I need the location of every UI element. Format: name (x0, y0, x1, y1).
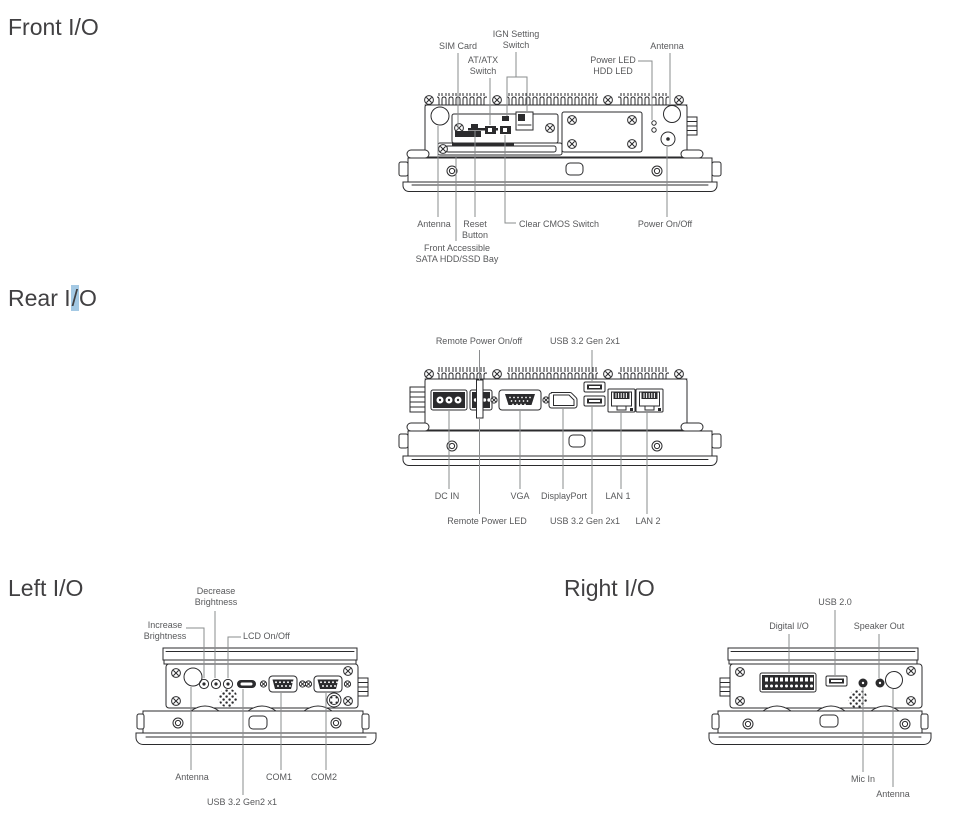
usb-c-port (237, 680, 256, 688)
antenna-hole-front-left (431, 107, 449, 125)
label-usb32-gen2: USB 3.2 Gen2 x1 (177, 797, 307, 808)
label-lan1: LAN 1 (578, 491, 658, 502)
lan1-port (608, 389, 635, 412)
vga-port (491, 390, 549, 410)
label-com2: COM2 (284, 772, 364, 783)
label-at-atx-switch: AT/ATX Switch (443, 55, 523, 77)
rear-side-stub (410, 387, 425, 412)
label-usb32-top: USB 3.2 Gen 2x1 (525, 336, 645, 347)
reset-button (471, 124, 478, 129)
label-power-on-off: Power On/Off (625, 219, 705, 230)
label-ign-setting-switch: IGN Setting Switch (476, 29, 556, 51)
text-selection-highlight: / (71, 285, 79, 311)
dc-in-port (431, 390, 467, 410)
rear-io-heading-post: O (79, 285, 97, 311)
rear-io-heading-pre: Rear I (8, 285, 71, 311)
mic-in-hole (859, 679, 868, 688)
front-io-heading: Front I/O (8, 13, 99, 42)
rear-device-art (399, 367, 721, 466)
label-speaker-out: Speaker Out (839, 621, 919, 632)
left-device-art (136, 648, 376, 745)
speaker-grille-left (219, 689, 238, 708)
device-line-art (0, 0, 963, 819)
rear-io-heading: Rear I/O (8, 284, 97, 313)
label-sata-bay: Front Accessible SATA HDD/SSD Bay (397, 243, 517, 265)
panel-pc-io-diagram: Front I/O Rear I/O Left I/O Right I/O SI… (0, 0, 963, 819)
label-lan2: LAN 2 (608, 516, 688, 527)
front-side-stub (687, 117, 697, 135)
right-side-stub (720, 678, 730, 696)
label-antenna-right: Antenna (853, 789, 933, 800)
label-usb20: USB 2.0 (795, 597, 875, 608)
front-device-art (399, 93, 721, 192)
left-io-heading: Left I/O (8, 574, 83, 603)
speaker-out-hole (876, 679, 885, 688)
digital-io-terminal (760, 673, 816, 692)
displayport-port (549, 393, 577, 408)
ign-switch-part (502, 116, 509, 121)
left-top-edge (163, 648, 357, 660)
label-digital-io: Digital I/O (749, 621, 829, 632)
speaker-grille-right (849, 690, 868, 709)
sim-card-slot (455, 131, 481, 137)
label-decrease-brightness: Decrease Brightness (176, 586, 256, 608)
label-increase-brightness: Increase Brightness (125, 620, 205, 642)
round-connector (327, 693, 341, 707)
label-power-hdd-led: Power LED HDD LED (573, 55, 653, 77)
label-mic-in: Mic In (823, 774, 903, 785)
remote-power-led-bar (477, 380, 484, 418)
label-clear-cmos-switch: Clear CMOS Switch (519, 219, 599, 230)
label-dc-in: DC IN (407, 491, 487, 502)
right-io-heading: Right I/O (564, 574, 655, 603)
left-side-stub (358, 678, 368, 696)
usb20-port (826, 676, 847, 686)
antenna-hole-front-right (664, 106, 681, 123)
antenna-hole-right-side (886, 672, 903, 689)
label-remote-power-on-off: Remote Power On/off (419, 336, 539, 347)
label-reset-button: Reset Button (435, 219, 515, 241)
label-antenna-front-top: Antenna (627, 41, 707, 52)
label-antenna-left: Antenna (152, 772, 232, 783)
label-lcd-on-off: LCD On/Off (243, 631, 290, 642)
lan2-port (636, 389, 663, 412)
right-top-edge (728, 648, 918, 660)
right-device-art (709, 648, 931, 745)
